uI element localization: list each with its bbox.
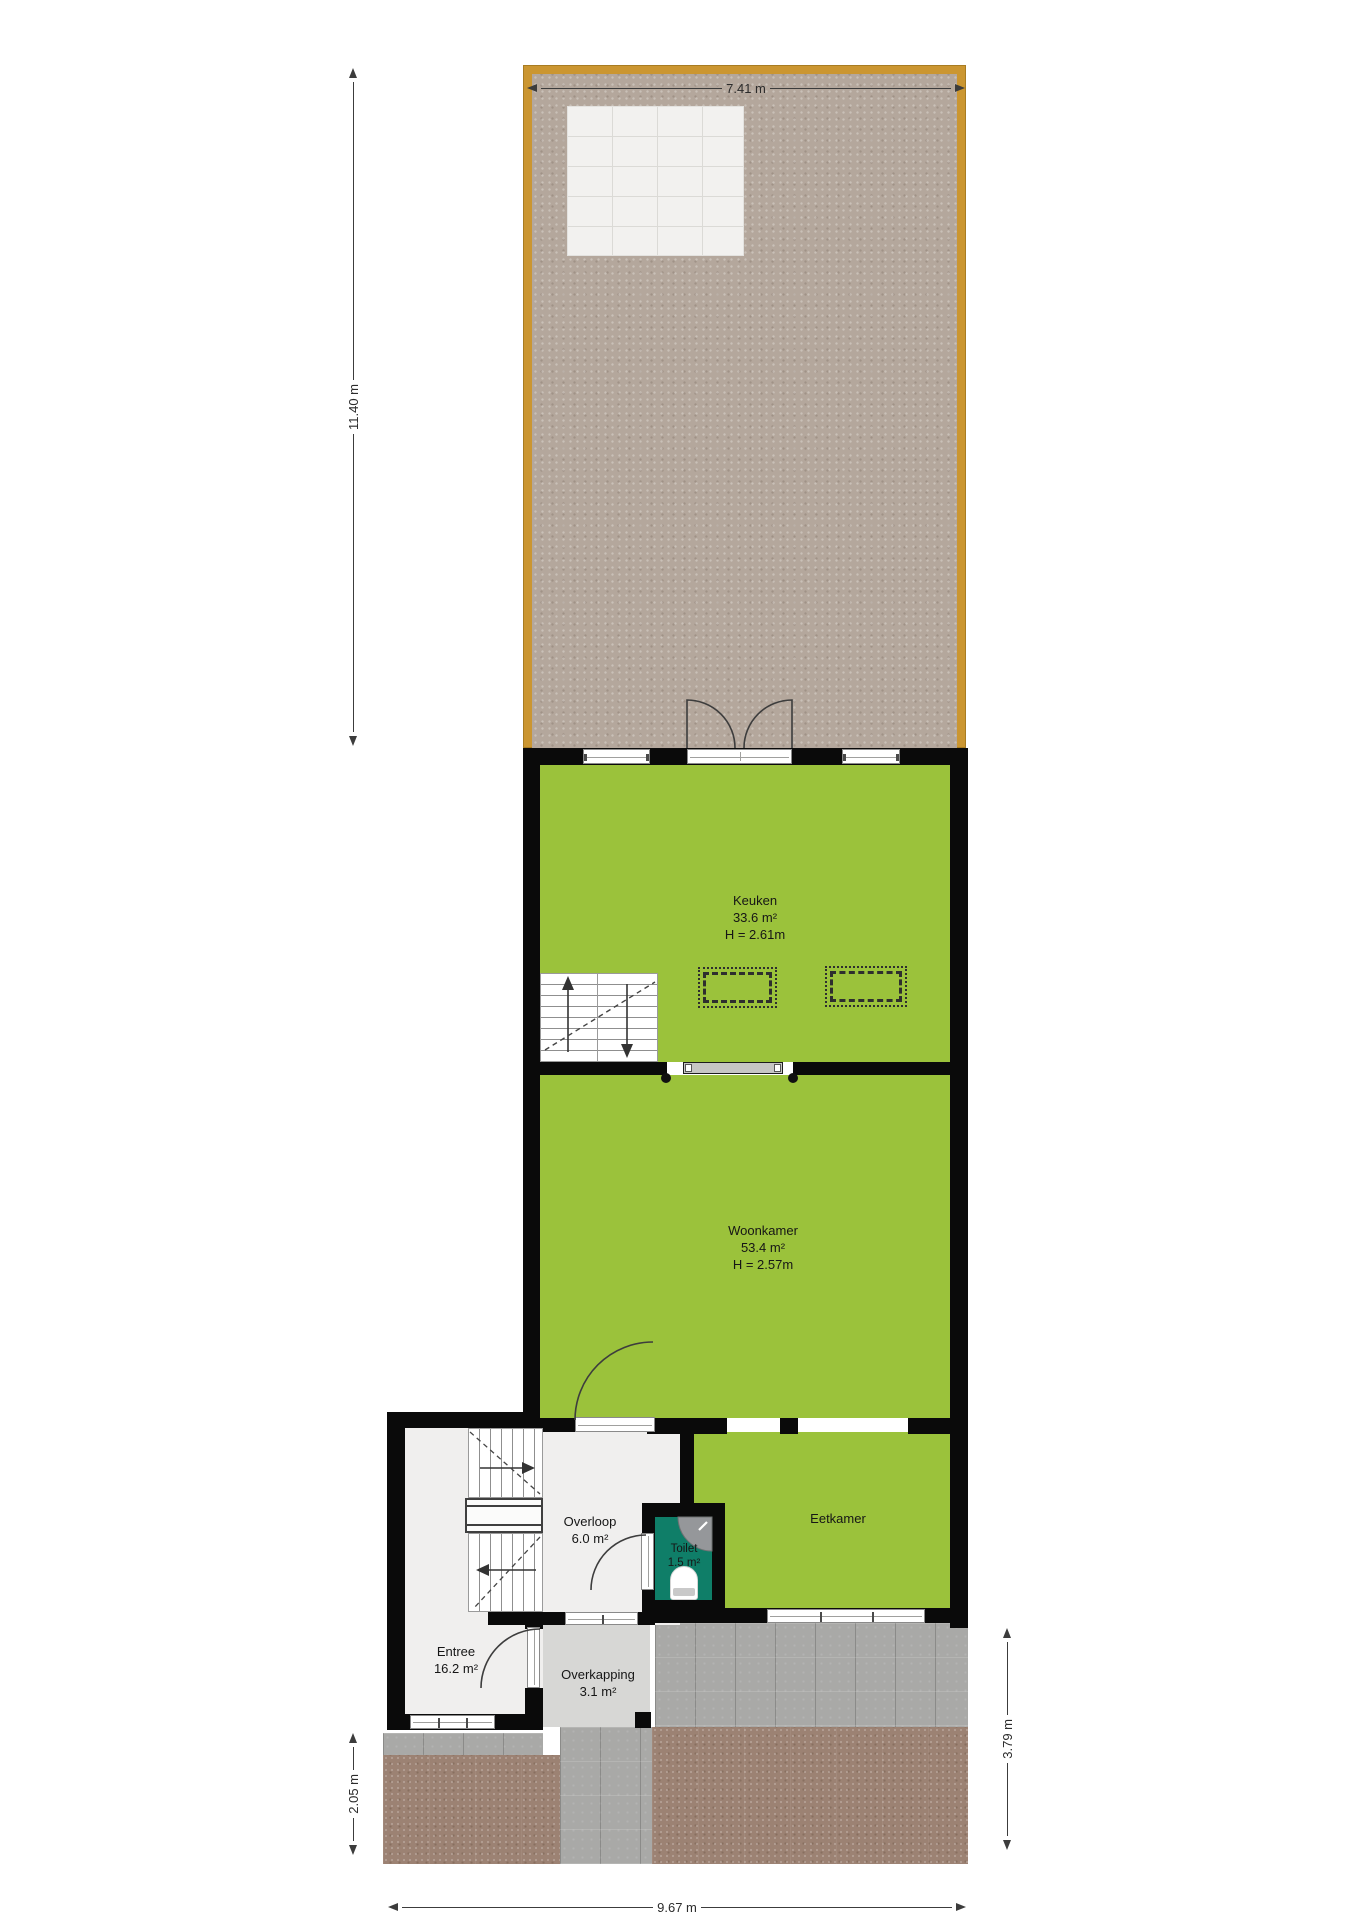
room-name-overkapping: Overkapping — [538, 1667, 658, 1684]
dimension-garden-left-label: 11.40 m — [346, 384, 361, 430]
dimension-bottom-label: 9.67 m — [657, 1900, 697, 1915]
room-area-toilet: 1.5 m² — [652, 1556, 716, 1570]
room-area-woonkamer: 53.4 m² — [703, 1240, 823, 1257]
room-area-entree: 16.2 m² — [396, 1661, 516, 1678]
dimension-bottom: 9.67 m — [388, 1899, 966, 1915]
dimension-garden-left: 11.40 m — [345, 68, 361, 746]
stairs-keuken-cut-line — [545, 982, 655, 1050]
floorplan-canvas: Keuken 33.6 m² H = 2.61m Woonkamer 53.4 … — [0, 0, 1358, 1920]
room-area-overkapping: 3.1 m² — [538, 1684, 658, 1701]
door-swing-overloop-woonkamer — [575, 1342, 653, 1420]
stairs-overloop-arrowhead-lower — [476, 1564, 489, 1576]
room-label-overloop: Overloop 6.0 m² — [530, 1514, 650, 1548]
room-label-toilet: Toilet 1.5 m² — [652, 1542, 716, 1571]
room-label-woonkamer: Woonkamer 53.4 m² H = 2.57m — [703, 1223, 823, 1274]
dimension-top: 7.41 m — [527, 80, 965, 96]
room-label-entree: Entree 16.2 m² — [396, 1644, 516, 1678]
room-name-toilet: Toilet — [652, 1542, 716, 1556]
stairs-overloop-arrowhead-upper — [522, 1462, 535, 1474]
room-label-eetkamer: Eetkamer — [778, 1511, 898, 1528]
room-area-overloop: 6.0 m² — [530, 1531, 650, 1548]
dimension-front-left: 2.05 m — [345, 1733, 361, 1855]
room-height-keuken: H = 2.61m — [695, 927, 815, 944]
line-art-overlay — [0, 0, 1358, 1920]
stairs-keuken-up-arrowhead — [562, 976, 574, 990]
dimension-front-right: 3.79 m — [999, 1628, 1015, 1850]
dimension-front-left-label: 2.05 m — [346, 1774, 361, 1814]
room-name-woonkamer: Woonkamer — [703, 1223, 823, 1240]
dimension-top-label: 7.41 m — [726, 81, 766, 96]
room-name-entree: Entree — [396, 1644, 516, 1661]
room-height-woonkamer: H = 2.57m — [703, 1257, 823, 1274]
room-name-eetkamer: Eetkamer — [778, 1511, 898, 1528]
stairs-overloop-cut-upper — [470, 1432, 540, 1494]
garden-door-swing-left — [687, 700, 735, 748]
dimension-front-right-label: 3.79 m — [1000, 1719, 1015, 1759]
room-name-overloop: Overloop — [530, 1514, 650, 1531]
room-label-overkapping: Overkapping 3.1 m² — [538, 1667, 658, 1701]
garden-door-swing-right — [744, 700, 792, 748]
toilet-bowl — [670, 1566, 698, 1600]
room-area-keuken: 33.6 m² — [695, 910, 815, 927]
room-name-keuken: Keuken — [695, 893, 815, 910]
stairs-keuken-down-arrowhead — [621, 1044, 633, 1058]
room-label-keuken: Keuken 33.6 m² H = 2.61m — [695, 893, 815, 944]
